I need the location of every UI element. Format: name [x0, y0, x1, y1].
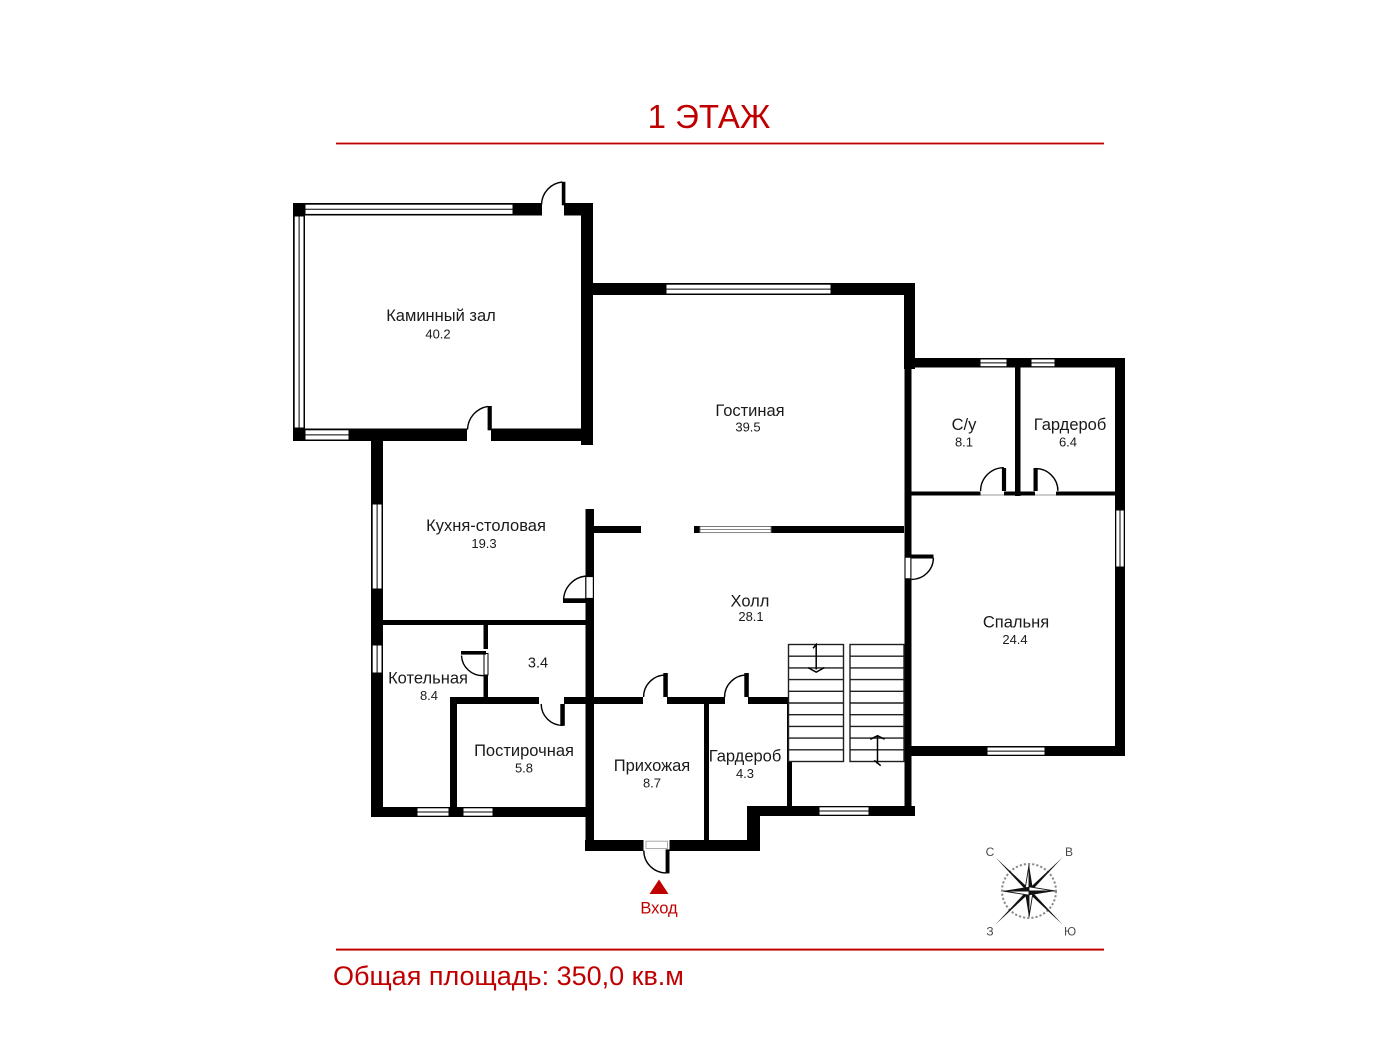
svg-text:40.2: 40.2: [425, 327, 450, 342]
svg-text:Постирочная: Постирочная: [474, 742, 574, 760]
svg-text:6.4: 6.4: [1059, 435, 1077, 450]
svg-text:Гардероб: Гардероб: [1034, 416, 1107, 434]
svg-text:8.4: 8.4: [420, 688, 438, 703]
svg-text:5.8: 5.8: [515, 761, 533, 776]
svg-text:Спальня: Спальня: [983, 614, 1049, 632]
svg-text:Вход: Вход: [640, 900, 678, 918]
svg-text:С: С: [986, 845, 995, 859]
svg-text:8.1: 8.1: [955, 435, 973, 450]
svg-text:19.3: 19.3: [471, 536, 496, 551]
svg-text:24.4: 24.4: [1002, 632, 1027, 647]
svg-text:Холл: Холл: [731, 593, 770, 611]
svg-text:Каминный зал: Каминный зал: [386, 307, 496, 325]
svg-text:Котельная: Котельная: [388, 670, 468, 688]
svg-text:Прихожая: Прихожая: [614, 757, 690, 775]
svg-text:Общая площадь: 350,0 кв.м: Общая площадь: 350,0 кв.м: [333, 961, 684, 991]
svg-text:28.1: 28.1: [738, 609, 763, 624]
svg-text:Кухня-столовая: Кухня-столовая: [426, 517, 546, 535]
svg-text:Гостиная: Гостиная: [715, 402, 784, 420]
svg-text:8.7: 8.7: [643, 776, 661, 791]
svg-text:В: В: [1065, 845, 1073, 859]
svg-text:39.5: 39.5: [735, 420, 760, 435]
svg-text:С/у: С/у: [952, 416, 978, 434]
svg-text:1 ЭТАЖ: 1 ЭТАЖ: [648, 98, 771, 135]
svg-text:3.4: 3.4: [528, 656, 548, 672]
svg-text:Гардероб: Гардероб: [709, 748, 782, 766]
svg-text:Ю: Ю: [1064, 925, 1076, 939]
svg-text:З: З: [986, 925, 993, 939]
svg-text:4.3: 4.3: [736, 766, 754, 781]
